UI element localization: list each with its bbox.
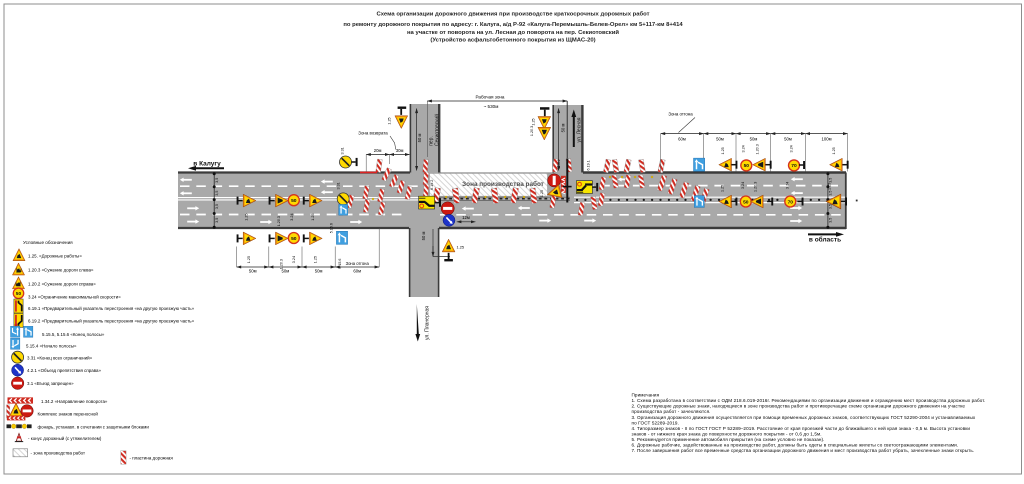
- svg-text:5. Рекомендуется применение ав: 5. Рекомендуется применение автомобиля п…: [632, 437, 825, 442]
- svg-text:3.31 «Конец всех ограничений»: 3.31 «Конец всех ограничений»: [27, 354, 93, 360]
- svg-text:3.1 «Въезд запрещен»: 3.1 «Въезд запрещен»: [27, 381, 74, 386]
- svg-text:- конус дорожный (с утяжелител: - конус дорожный (с утяжелителем): [28, 435, 102, 441]
- svg-text:1.25: 1.25: [313, 256, 317, 263]
- svg-text:2. Существующие дорожные знаки: 2. Существующие дорожные знаки, находящи…: [632, 403, 966, 408]
- svg-text:1.25: 1.25: [457, 245, 465, 250]
- svg-text:Примечания: Примечания: [632, 392, 660, 397]
- svg-text:Зона отгона: Зона отгона: [668, 111, 693, 116]
- svg-text:3,5: 3,5: [215, 204, 219, 209]
- svg-text:50 м: 50 м: [417, 134, 422, 143]
- svg-text:6.19.2: 6.19.2: [430, 180, 434, 190]
- svg-text:3.24: 3.24: [742, 145, 746, 152]
- svg-text:Зона возврата: Зона возврата: [358, 131, 388, 136]
- svg-text:Рабочая зона: Рабочая зона: [476, 94, 505, 99]
- svg-text:1.20.3 «Сужение дороги слева»: 1.20.3 «Сужение дороги слева»: [28, 268, 94, 273]
- svg-text:Комплекс знаков переносной: Комплекс знаков переносной: [38, 411, 99, 417]
- svg-text:в Калугу: в Калугу: [193, 161, 221, 168]
- svg-text:1.25: 1.25: [832, 147, 836, 154]
- svg-text:(Устройство асфальтобетонного: (Устройство асфальтобетонного покрытия и…: [430, 37, 595, 44]
- svg-text:ул. Лесная: ул. Лесная: [576, 117, 582, 142]
- svg-text:3.24: 3.24: [290, 214, 294, 221]
- svg-text:1.25: 1.25: [245, 214, 249, 221]
- svg-text:Схема организации дорожного дв: Схема организации дорожного движения при…: [377, 11, 650, 18]
- svg-text:3. Организация дорожного движе: 3. Организация дорожного движения осущес…: [632, 415, 976, 420]
- svg-text:3.24: 3.24: [292, 256, 296, 263]
- svg-text:1.25. «Дорожные работы»: 1.25. «Дорожные работы»: [28, 254, 82, 259]
- svg-text:50м: 50м: [750, 137, 758, 142]
- svg-text:50м: 50м: [784, 137, 792, 142]
- svg-text:3.24: 3.24: [789, 145, 793, 152]
- svg-text:6. Дорожные рабочие, задейств: 6. Дорожные рабочие, задействованные на …: [632, 442, 959, 448]
- svg-text:3.31: 3.31: [337, 182, 341, 189]
- svg-text:1.25: 1.25: [387, 117, 391, 124]
- svg-text:3,5: 3,5: [215, 178, 219, 183]
- svg-text:3,5: 3,5: [215, 218, 219, 223]
- svg-text:Секиотовский: Секиотовский: [433, 114, 440, 146]
- svg-text:60м: 60м: [678, 137, 686, 142]
- svg-text:30м: 30м: [396, 148, 404, 153]
- svg-text:3,5: 3,5: [829, 218, 833, 223]
- svg-text:5.15.6: 5.15.6: [330, 223, 334, 233]
- svg-text:3.31: 3.31: [340, 147, 344, 154]
- svg-text:6.19.1: 6.19.1: [586, 160, 590, 170]
- svg-text:3.24: 3.24: [786, 182, 790, 189]
- svg-text:50 м: 50 м: [421, 232, 426, 241]
- svg-text:5.15.5, 5.15.6 «Конец полосы»: 5.15.5, 5.15.6 «Конец полосы»: [42, 332, 105, 337]
- svg-text:1. Схема разработана в соответ: 1. Схема разработана в соответствии с ОД…: [632, 398, 986, 403]
- svg-text:5.15.6: 5.15.6: [338, 259, 342, 269]
- svg-text:3,5: 3,5: [215, 191, 219, 196]
- svg-text:20м: 20м: [374, 148, 382, 153]
- svg-text:60м: 60м: [353, 269, 361, 274]
- svg-text:ул. Планерная: ул. Планерная: [424, 306, 430, 340]
- svg-text:1.25: 1.25: [827, 183, 831, 190]
- svg-text:3,5: 3,5: [829, 191, 833, 196]
- svg-text:- пластина дорожная: - пластина дорожная: [130, 456, 174, 461]
- svg-text:6.19.1 «Предварительный указат: 6.19.1 «Предварительный указатель перест…: [28, 305, 195, 311]
- svg-text:1.34.2: 1.34.2: [557, 159, 561, 169]
- svg-text:4. Типоразмер знаков - II по Г: 4. Типоразмер знаков - II по ГОСТ ГОСТ Р…: [632, 425, 971, 431]
- svg-text:50 м: 50 м: [560, 124, 565, 133]
- svg-text:100м: 100м: [821, 137, 831, 142]
- svg-text:1.20.3: 1.20.3: [279, 259, 283, 269]
- svg-text:1.25: 1.25: [721, 147, 725, 154]
- svg-text:50м: 50м: [716, 137, 724, 142]
- svg-text:4.2.1 «Объезд препятствия спра: 4.2.1 «Объезд препятствия справа»: [27, 368, 102, 373]
- svg-text:Зона отгона: Зона отгона: [346, 261, 370, 266]
- svg-text:3,5: 3,5: [829, 178, 833, 183]
- svg-text:12м: 12м: [462, 215, 470, 220]
- svg-text:- зона производства работ: - зона производства работ: [31, 451, 86, 456]
- svg-text:6.19.2 «Предварительный указат: 6.19.2 «Предварительный указатель перест…: [28, 318, 195, 324]
- svg-text:~ 530м: ~ 530м: [484, 104, 499, 109]
- svg-text:3.24 «Ограничение максимальной: 3.24 «Ограничение максимальной скорости»: [28, 293, 121, 299]
- svg-text:Зона производства работ: Зона производства работ: [462, 180, 544, 188]
- svg-text:1.20.3: 1.20.3: [756, 144, 760, 154]
- svg-text:фонарь, устанавл. в сочетании: фонарь, устанавл. в сочетании с защитным…: [38, 424, 150, 429]
- svg-text:7. После завершения работ все: 7. После завершения работ все временные …: [632, 448, 975, 453]
- svg-text:1.25: 1.25: [721, 185, 725, 192]
- svg-text:знаков - от нижнего края знака: знаков - от нижнего края знака до поверх…: [632, 432, 822, 437]
- svg-text:Условные обозначения: Условные обозначения: [23, 240, 73, 245]
- svg-text:50м: 50м: [315, 269, 323, 274]
- svg-text:1.25: 1.25: [247, 256, 251, 263]
- svg-text:по ГОСТ 52289-2019.: по ГОСТ 52289-2019.: [632, 420, 679, 425]
- svg-text:1.20.3: 1.20.3: [530, 126, 534, 136]
- svg-text:1.20.2 «Сужение дороги справа»: 1.20.2 «Сужение дороги справа»: [28, 281, 96, 286]
- svg-text:1.25: 1.25: [540, 190, 544, 197]
- svg-text:3.24: 3.24: [741, 182, 745, 189]
- svg-text:1.25: 1.25: [531, 118, 535, 125]
- svg-text:на участке от поворота на ул.: на участке от поворота на ул. Лесная до …: [407, 29, 619, 36]
- svg-text:5.15.4 «Начало полосы»: 5.15.4 «Начало полосы»: [26, 343, 77, 348]
- svg-text:1.20.3: 1.20.3: [277, 216, 281, 226]
- svg-text:1.25: 1.25: [311, 214, 315, 221]
- svg-text:50м: 50м: [249, 269, 257, 274]
- svg-text:производства работ - зачехляют: производства работ - зачехляются.: [632, 409, 711, 414]
- svg-text:1.34.2 «Направление поворота»: 1.34.2 «Направление поворота»: [41, 399, 108, 404]
- svg-text:1.20.3: 1.20.3: [753, 182, 757, 192]
- svg-text:по ремонту дорожного покрытия: по ремонту дорожного покрытия по адресу:…: [343, 22, 683, 28]
